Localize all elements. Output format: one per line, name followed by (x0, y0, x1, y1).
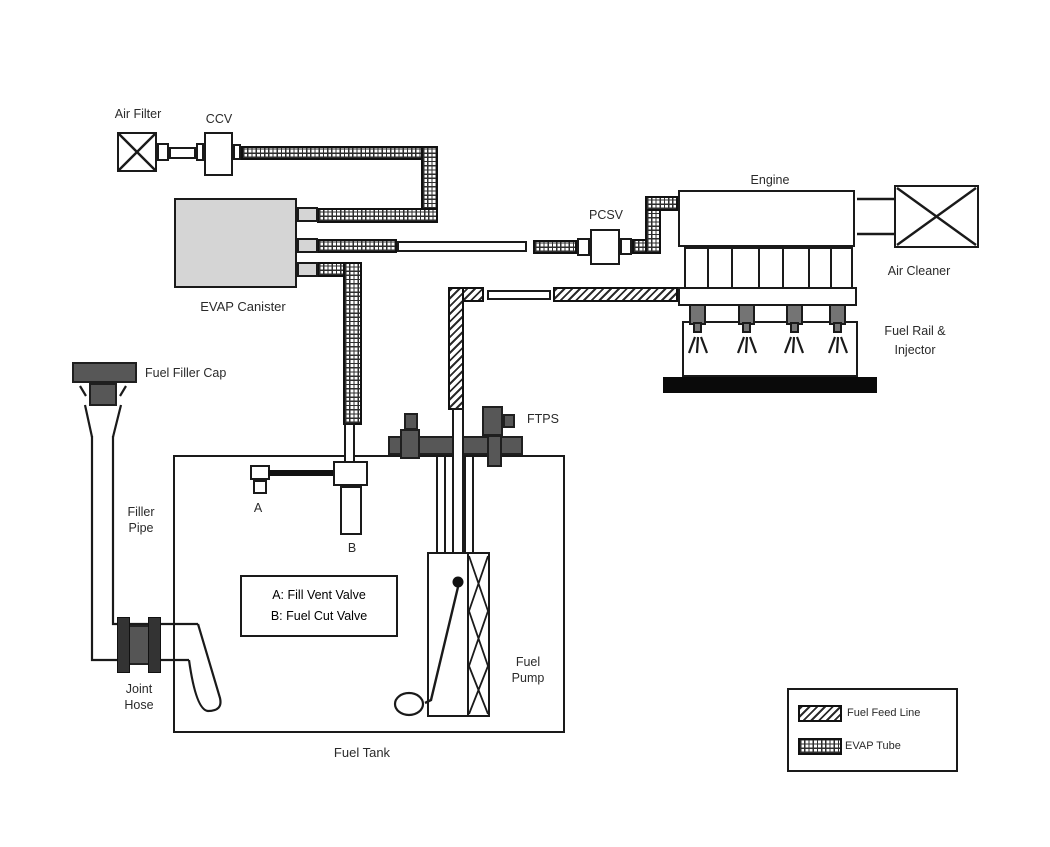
vent-valve-link-line (268, 470, 333, 476)
label-fuel-pump-line2: Pump (512, 670, 545, 686)
label-ccv: CCV (206, 112, 232, 126)
evap-tube-ccv-horizontal (241, 146, 438, 160)
evap-tube-canister-top (317, 208, 438, 223)
injector-2-tip (742, 322, 751, 333)
label-marker-b: B (348, 541, 356, 555)
label-fuel-pump: Fuel Pump (512, 654, 545, 686)
fuel-filler-cap-neck (89, 383, 117, 406)
air-filter-outlet-fitting (157, 143, 169, 161)
label-fuel-rail-injector: Fuel Rail & Injector (884, 322, 945, 360)
joint-hose-clamp-left (117, 617, 130, 673)
evap-tube-pcsv-left (533, 240, 577, 254)
pump-tube-right (464, 455, 474, 554)
pump-tube-left (436, 455, 446, 554)
legend-swatch-fuel-feed (798, 705, 842, 722)
evap-tube-to-tank-vertical (343, 262, 362, 425)
label-fuel-pump-line1: Fuel (512, 654, 545, 670)
fuel-cut-valve-body (340, 486, 362, 535)
fill-vent-valve-body (253, 480, 267, 494)
ccv-valve-body (204, 132, 233, 176)
flange-fitting-cap (404, 413, 418, 430)
label-joint-hose: Joint Hose (124, 681, 153, 713)
valve-note-box: A: Fill Vent Valve B: Fuel Cut Valve (240, 575, 398, 637)
label-air-cleaner: Air Cleaner (888, 264, 951, 278)
valve-note-line2: B: Fuel Cut Valve (242, 606, 396, 627)
evap-tube-engine-horizontal (645, 196, 678, 211)
runner-divider (782, 249, 784, 287)
canister-port-middle (297, 238, 318, 253)
evap-canister-body (174, 198, 297, 288)
label-pcsv: PCSV (589, 208, 623, 222)
runner-divider (707, 249, 709, 287)
fuel-filler-cap-top (72, 362, 137, 383)
label-fuel-filler-cap: Fuel Filler Cap (145, 366, 226, 380)
canister-port-top (297, 207, 318, 222)
injector-4-tip (833, 322, 842, 333)
fuel-cut-valve-head (333, 461, 368, 486)
fuel-pump-body (427, 552, 490, 717)
cylinder-head-box (682, 321, 858, 377)
ftps-connector-tab (503, 414, 515, 428)
runner-divider (808, 249, 810, 287)
label-fuel-rail-line1: Fuel Rail & (884, 322, 945, 341)
fuel-cut-valve-tube (344, 423, 355, 463)
evap-tube-canister-mid (317, 239, 397, 253)
label-evap-canister: EVAP Canister (200, 299, 286, 314)
fuel-feed-pipe-segment (487, 290, 551, 300)
fuel-feed-suction-tube (452, 408, 464, 554)
fuel-evap-system-diagram: A: Fill Vent Valve B: Fuel Cut Valve Fue… (0, 0, 1050, 847)
canister-port-bottom (297, 262, 318, 277)
legend-box (787, 688, 958, 772)
filler-funnel-lines (85, 405, 121, 437)
intake-runner-strip (684, 247, 853, 289)
valve-note-text: A: Fill Vent Valve B: Fuel Cut Valve (242, 577, 396, 627)
pcsv-valve-body (590, 229, 620, 265)
ccv-outlet-fitting (233, 144, 241, 160)
injector-3-tip (790, 322, 799, 333)
fill-vent-valve-head (250, 465, 270, 480)
fuel-pump-divider (467, 553, 469, 716)
ftps-stem (487, 435, 502, 467)
fuel-feed-line-vertical (448, 287, 464, 410)
runner-divider (758, 249, 760, 287)
label-joint-line2: Hose (124, 697, 153, 713)
flange-fitting-collar (400, 429, 420, 459)
legend-label-evap-tube: EVAP Tube (845, 740, 901, 752)
label-filler-line2: Pipe (127, 520, 154, 536)
injector-1-tip (693, 322, 702, 333)
air-cleaner-box (894, 185, 979, 248)
air-filter-box (117, 132, 157, 172)
label-air-filter: Air Filter (115, 107, 162, 121)
fuel-feed-line-to-rail (553, 287, 678, 302)
joint-hose-clamp-right (148, 617, 161, 673)
pcsv-outlet-fitting (620, 238, 632, 255)
legend-label-fuel-feed: Fuel Feed Line (847, 707, 920, 719)
fuel-rail-bar (678, 287, 857, 306)
engine-block (678, 190, 855, 247)
pcsv-inlet-fitting (577, 238, 590, 256)
purge-pipe-segment (397, 241, 527, 252)
runner-divider (731, 249, 733, 287)
label-filler-pipe: Filler Pipe (127, 504, 154, 536)
label-marker-a: A (254, 501, 262, 515)
engine-base-plate (663, 377, 877, 393)
label-filler-line1: Filler (127, 504, 154, 520)
label-fuel-tank: Fuel Tank (334, 745, 390, 760)
label-engine: Engine (751, 173, 790, 187)
legend-swatch-evap-tube (798, 738, 842, 755)
air-filter-ccv-pipe (169, 147, 196, 159)
runner-divider (830, 249, 832, 287)
label-fuel-rail-line2: Injector (884, 341, 945, 360)
ccv-inlet-fitting (196, 143, 204, 161)
valve-note-line1: A: Fill Vent Valve (242, 585, 396, 606)
ftps-sensor-body (482, 406, 503, 436)
label-ftps: FTPS (527, 412, 559, 426)
air-cleaner-duct-lines (857, 199, 894, 234)
label-joint-line1: Joint (124, 681, 153, 697)
